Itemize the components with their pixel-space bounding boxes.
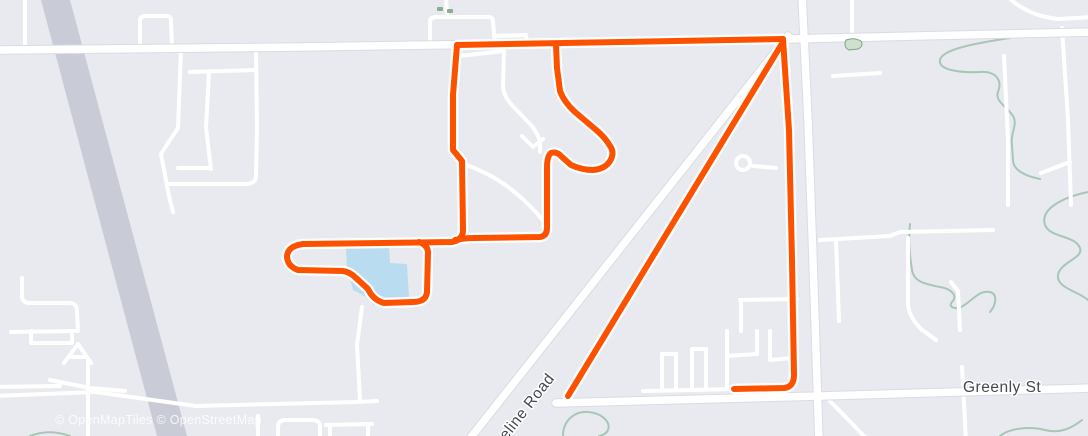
road-label-greenly: Greenly St [963, 379, 1041, 396]
map-attribution[interactable]: © OpenMapTiles © OpenStreetMap [55, 413, 262, 427]
map-canvas[interactable]: Baseline Road Greenly St [0, 0, 1088, 436]
railway-band [41, 0, 187, 436]
main-road-right [802, 0, 819, 436]
map-container[interactable]: Baseline Road Greenly St © OpenMapTiles … [0, 0, 1088, 436]
